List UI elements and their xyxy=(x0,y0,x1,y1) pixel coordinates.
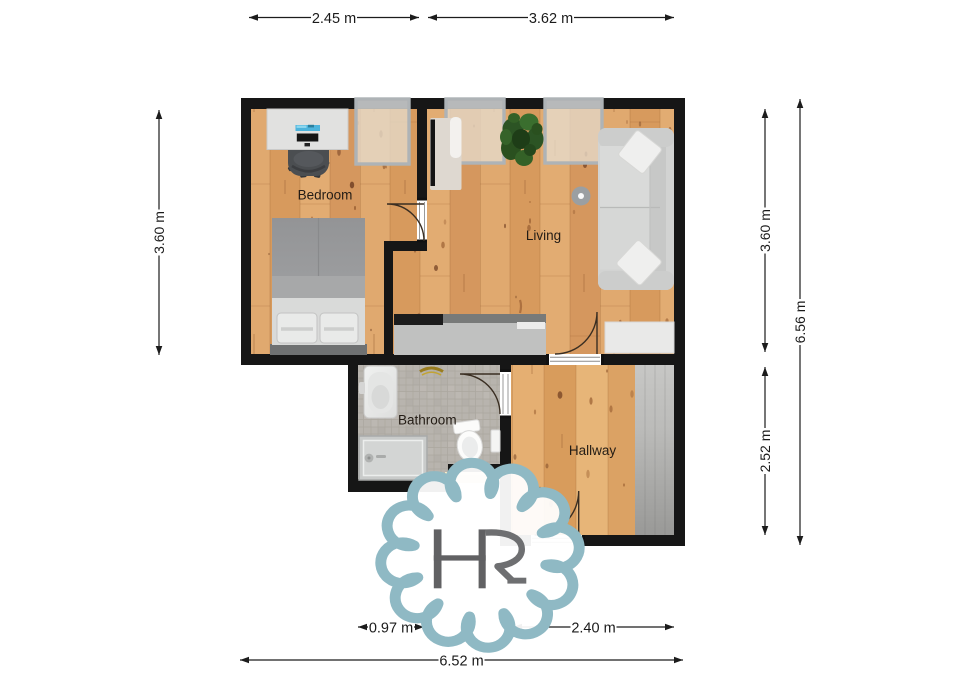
svg-text:0.97 m: 0.97 m xyxy=(369,620,413,636)
svg-text:3.62 m: 3.62 m xyxy=(529,11,573,27)
svg-text:6.56 m: 6.56 m xyxy=(792,301,808,344)
svg-text:2.45 m: 2.45 m xyxy=(312,11,356,27)
svg-text:2.40 m: 2.40 m xyxy=(571,620,615,636)
svg-text:6.52 m: 6.52 m xyxy=(439,653,483,669)
svg-text:Living: Living xyxy=(526,228,561,243)
svg-text:2.52 m: 2.52 m xyxy=(757,430,773,473)
svg-text:3.60 m: 3.60 m xyxy=(757,209,773,252)
svg-text:Bedroom: Bedroom xyxy=(298,188,353,203)
svg-text:Bathroom: Bathroom xyxy=(398,413,457,428)
svg-text:3.60 m: 3.60 m xyxy=(151,211,167,254)
svg-text:Hallway: Hallway xyxy=(569,443,617,458)
